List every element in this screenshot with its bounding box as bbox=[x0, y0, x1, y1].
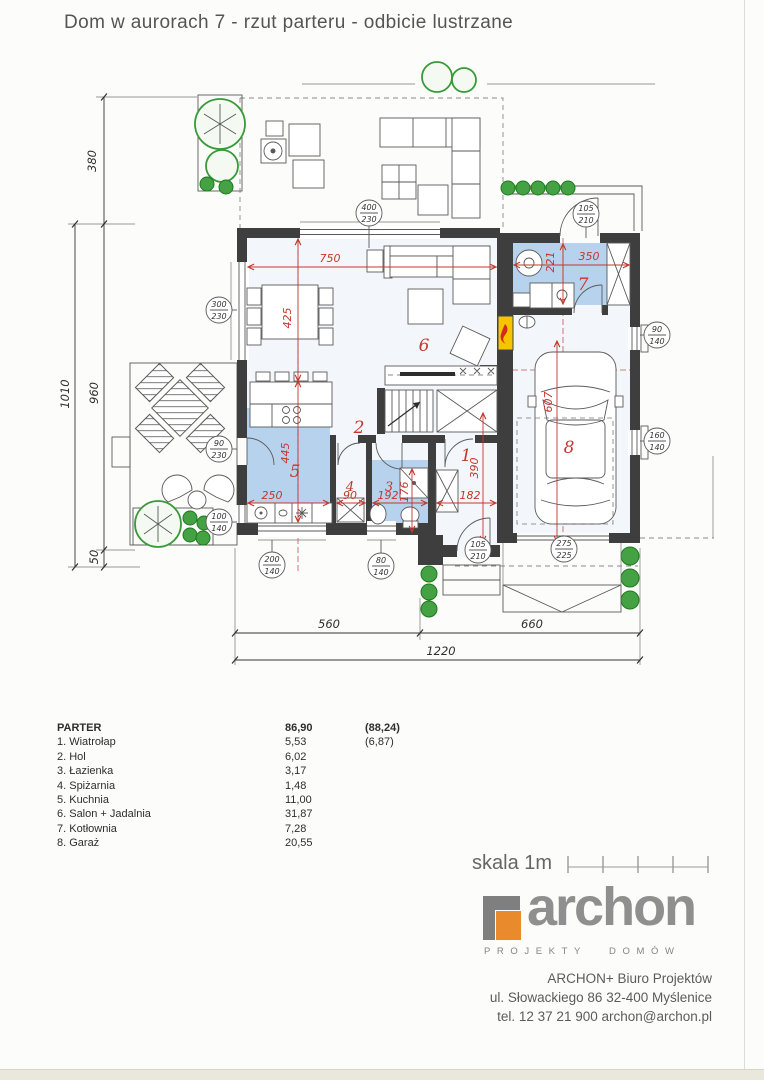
window-tag-105-210-boiler: 105210 bbox=[573, 201, 599, 227]
svg-text:90: 90 bbox=[652, 325, 662, 334]
scale-indicator: skala 1m bbox=[472, 852, 716, 875]
address-line: tel. 12 37 21 900 archon@archon.pl bbox=[490, 1007, 712, 1026]
scan-edge-artifact bbox=[744, 0, 745, 1080]
bush-icon bbox=[516, 181, 530, 195]
legend-row: 4. Spiżarnia1,48 bbox=[57, 779, 450, 793]
scan-bottom-artifact bbox=[0, 1069, 764, 1080]
bush-icon bbox=[421, 601, 437, 617]
chimney-shaft bbox=[607, 243, 630, 305]
window-tag-100-140: 100140 bbox=[206, 509, 232, 535]
svg-text:160: 160 bbox=[649, 431, 664, 440]
tree-icon bbox=[422, 62, 452, 92]
logo-orange-square bbox=[496, 911, 521, 940]
room-number-3: 3 bbox=[385, 480, 393, 495]
svg-text:230: 230 bbox=[211, 451, 226, 460]
car bbox=[528, 352, 623, 524]
bush-icon bbox=[531, 181, 545, 195]
window-tag-90-230: 90230 bbox=[206, 436, 232, 462]
dim-50: 50 bbox=[87, 550, 101, 565]
entry-wardrobe bbox=[436, 470, 458, 512]
svg-text:200: 200 bbox=[264, 555, 279, 564]
window-tag-80-140: 80140 bbox=[368, 553, 394, 579]
dim-750: 750 bbox=[320, 252, 341, 265]
window-tag-300-230: 300230 bbox=[206, 297, 232, 323]
room-number-4: 4 bbox=[345, 480, 354, 495]
svg-text:230: 230 bbox=[211, 312, 226, 321]
legend-name: PARTER bbox=[57, 721, 285, 735]
legend-area: 86,90 bbox=[285, 721, 365, 735]
logo-wordmark: archon bbox=[527, 876, 695, 938]
bush-icon bbox=[561, 181, 575, 195]
svg-text:100: 100 bbox=[211, 512, 226, 521]
tree-icon bbox=[452, 68, 476, 92]
scale-bar bbox=[566, 853, 716, 875]
stairs bbox=[385, 390, 433, 432]
dim-221: 221 bbox=[544, 252, 557, 273]
scanned-floor-plan-page: Dom w aurorach 7 - rzut parteru - odbici… bbox=[0, 0, 764, 1080]
legend-row: 2. Hol6,02 bbox=[57, 750, 450, 764]
room-legend: PARTER 86,90 (88,24) 1. Wiatrołap5,53(6,… bbox=[57, 721, 450, 851]
svg-text:210: 210 bbox=[578, 216, 593, 225]
bush-icon bbox=[546, 181, 560, 195]
bush-icon bbox=[621, 591, 639, 609]
dim-350: 350 bbox=[579, 250, 600, 263]
svg-text:140: 140 bbox=[373, 568, 388, 577]
scale-label: skala 1m bbox=[472, 852, 552, 875]
window-tag-160-140: 160140 bbox=[644, 428, 670, 454]
window-tag-90-140: 90140 bbox=[644, 322, 670, 348]
svg-text:140: 140 bbox=[211, 524, 226, 533]
dim-560: 560 bbox=[318, 617, 340, 631]
archon-logo-icon bbox=[483, 896, 521, 944]
room-number-1: 1 bbox=[461, 446, 472, 466]
bush-icon bbox=[219, 180, 233, 194]
legend-row: 6. Salon + Jadalnia31,87 bbox=[57, 807, 450, 821]
page-title: Dom w aurorach 7 - rzut parteru - odbici… bbox=[64, 12, 513, 34]
svg-text:140: 140 bbox=[264, 567, 279, 576]
room-number-7: 7 bbox=[578, 275, 589, 295]
tree-icon bbox=[206, 150, 238, 182]
tv-cabinet bbox=[385, 366, 497, 385]
svg-text:230: 230 bbox=[361, 215, 376, 224]
room-number-6: 6 bbox=[419, 336, 430, 356]
svg-text:80: 80 bbox=[376, 556, 386, 565]
bush-icon bbox=[621, 569, 639, 587]
bush-icon bbox=[421, 566, 437, 582]
bush-icon bbox=[196, 531, 210, 545]
window-tag-200-140: 200140 bbox=[259, 552, 285, 578]
bush-icon bbox=[200, 177, 214, 191]
svg-text:275: 275 bbox=[556, 539, 571, 548]
room-number-2: 2 bbox=[353, 418, 365, 438]
logo-tagline: PROJEKTY DOMÓW bbox=[484, 946, 681, 957]
dim-1220: 1220 bbox=[426, 644, 455, 658]
hall-wardrobe bbox=[437, 390, 497, 432]
window-tag-400-230: 400230 bbox=[356, 200, 382, 226]
bush-icon bbox=[421, 584, 437, 600]
window-tag-105-210-entry: 105210 bbox=[465, 537, 491, 563]
dim-960: 960 bbox=[87, 382, 101, 404]
bush-icon bbox=[183, 511, 197, 525]
svg-text:105: 105 bbox=[578, 204, 593, 213]
terrace-coffee-set bbox=[162, 475, 234, 509]
legend-extra: (88,24) bbox=[365, 721, 450, 735]
room-number-5: 5 bbox=[290, 462, 301, 482]
dim-1010: 1010 bbox=[58, 379, 72, 408]
side-table bbox=[408, 289, 443, 324]
dim-176: 176 bbox=[398, 482, 411, 503]
legend-row: 5. Kuchnia11,00 bbox=[57, 793, 450, 807]
kitchen-counter bbox=[247, 503, 332, 523]
bush-icon bbox=[501, 181, 515, 195]
legend-header: PARTER 86,90 (88,24) bbox=[57, 721, 450, 735]
entry-walkway bbox=[443, 565, 500, 595]
svg-text:140: 140 bbox=[649, 337, 664, 346]
floor-plan-drawing: 750 350 221 425 445 250 90 192 182 176 3… bbox=[0, 40, 764, 720]
fireplace bbox=[498, 316, 513, 350]
svg-text:210: 210 bbox=[470, 552, 485, 561]
dim-445: 445 bbox=[279, 443, 292, 464]
window-tag-275-225: 275225 bbox=[551, 536, 577, 562]
dim-607: 607 bbox=[542, 392, 555, 413]
legend-row: 1. Wiatrołap5,53(6,87) bbox=[57, 735, 450, 749]
legend-row: 3. Łazienka3,17 bbox=[57, 764, 450, 778]
bush-icon bbox=[183, 528, 197, 542]
dim-182: 182 bbox=[460, 489, 481, 502]
svg-text:225: 225 bbox=[556, 551, 571, 560]
company-address: ARCHON+ Biuro Projektów ul. Słowackiego … bbox=[490, 969, 712, 1026]
dim-380: 380 bbox=[85, 150, 99, 172]
legend-row: 7. Kotłownia7,28 bbox=[57, 822, 450, 836]
svg-text:140: 140 bbox=[649, 443, 664, 452]
address-line: ul. Słowackiego 86 32-400 Myślenice bbox=[490, 988, 712, 1007]
dim-660: 660 bbox=[521, 617, 543, 631]
dim-250: 250 bbox=[262, 489, 283, 502]
svg-text:105: 105 bbox=[470, 540, 485, 549]
dim-425: 425 bbox=[281, 308, 294, 329]
bush-icon bbox=[621, 547, 639, 565]
room-number-8: 8 bbox=[564, 438, 575, 458]
address-line: ARCHON+ Biuro Projektów bbox=[490, 969, 712, 988]
svg-text:300: 300 bbox=[211, 300, 226, 309]
legend-row: 8. Garaż20,55 bbox=[57, 836, 450, 850]
svg-text:400: 400 bbox=[361, 203, 376, 212]
svg-text:90: 90 bbox=[214, 439, 224, 448]
